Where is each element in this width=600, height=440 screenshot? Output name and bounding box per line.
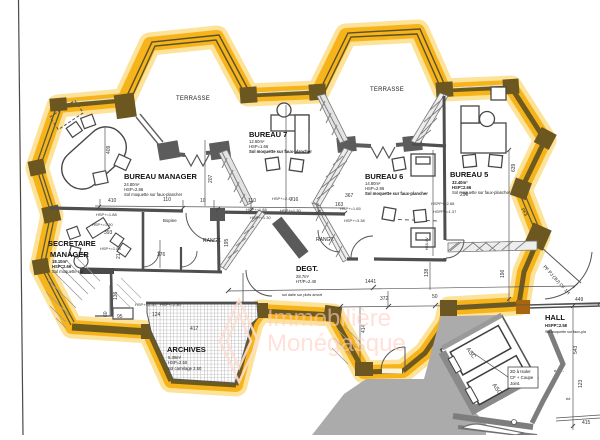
svg-text:HSP+=2.44: HSP+=2.44 [272,196,293,201]
svg-text:HSU AV: HSU AV [425,237,429,250]
svg-text:95: 95 [117,314,123,320]
svg-text:TERRASSE: TERRASSE [176,96,210,102]
svg-text:Immobilière: Immobilière [267,305,391,332]
svg-text:HSP+=1.88: HSP+=1.88 [246,207,267,212]
svg-text:HSP+=1.88: HSP+=1.88 [96,212,117,217]
svg-text:HT/P=2.40: HT/P=2.40 [296,279,317,284]
svg-text:BUREAU 6: BUREAU 6 [365,172,403,181]
svg-text:BUREAU MANAGER: BUREAU MANAGER [124,172,198,181]
svg-text:410: 410 [108,198,117,204]
svg-text:Sol moquette sur: Sol moquette sur [52,269,84,274]
svg-text:136: 136 [113,291,119,300]
svg-text:Sol moquette sur faux-plancher: Sol moquette sur faux-plancher [452,190,511,195]
svg-text:367: 367 [345,193,354,199]
svg-text:196: 196 [500,269,506,278]
svg-text:HSP+=1.30: HSP+=1.30 [280,208,301,213]
svg-text:BUREAU 5: BUREAU 5 [450,170,488,179]
svg-text:Sol moquette sur faux-pla: Sol moquette sur faux-pla [545,330,586,334]
svg-text:BUREAU 7: BUREAU 7 [249,130,287,139]
svg-text:1441: 1441 [365,279,376,285]
svg-text:HSP+=2.30: HSP+=2.30 [160,302,181,307]
svg-text:449: 449 [575,297,584,303]
svg-text:HSP+=1.88: HSP+=1.88 [100,246,121,251]
svg-text:123: 123 [578,379,584,388]
svg-text:2D à Isoler: 2D à Isoler [510,369,531,374]
svg-text:639: 639 [511,163,517,172]
svg-text:HSP=2.50: HSP=2.50 [168,360,188,365]
svg-text:393: 393 [104,230,113,236]
svg-text:110: 110 [163,197,171,203]
svg-text:HSP+=1.30: HSP+=1.30 [92,222,113,227]
svg-text:SECRETAIRE: SECRETAIRE [48,239,96,248]
svg-text:ARCHIVES: ARCHIVES [167,345,206,354]
svg-text:HSPP+=1.37: HSPP+=1.37 [433,209,457,214]
svg-text:376: 376 [157,252,166,258]
svg-text:MANAGER: MANAGER [50,250,89,259]
svg-text:HSP+=3.38: HSP+=3.38 [344,218,365,223]
svg-text:417: 417 [190,326,199,332]
svg-text:TERRASSE: TERRASSE [370,87,404,93]
svg-text:Sol moquette sur faux-plancher: Sol moquette sur faux-plancher [249,149,312,154]
svg-text:Monégasque: Monégasque [267,330,406,357]
svg-text:RANGT.: RANGT. [203,238,221,244]
svg-text:DEGT.: DEGT. [296,264,318,273]
svg-text:207: 207 [208,174,214,183]
svg-text:415: 415 [582,420,591,426]
svg-text:60: 60 [103,311,109,317]
svg-text:CF + Coupe: CF + Coupe [510,375,534,380]
svg-text:124: 124 [152,312,161,318]
svg-text:HSPP+=2.88: HSPP+=2.88 [431,201,455,206]
svg-text:50: 50 [432,294,438,300]
svg-text:Sol moquette sur faux-plancher: Sol moquette sur faux-plancher [124,192,183,197]
svg-text:HSP+=1.30: HSP+=1.30 [250,215,271,220]
svg-text:HALL: HALL [545,313,565,322]
svg-text:138: 138 [424,268,430,277]
svg-text:21: 21 [116,253,122,259]
svg-text:sol carrelage 2.50: sol carrelage 2.50 [168,366,202,371]
svg-text:HSP+=1.65: HSP+=1.65 [340,206,361,211]
svg-text:Joint.: Joint. [510,381,520,386]
svg-text:195: 195 [224,238,230,247]
svg-text:10: 10 [200,198,206,204]
svg-text:409: 409 [106,145,112,154]
svg-text:Sol moquette sur faux-plancher: Sol moquette sur faux-plancher [365,191,428,196]
svg-text:Bopine: Bopine [163,218,177,223]
svg-text:110: 110 [248,198,256,204]
svg-text:RANGT.: RANGT. [316,237,334,243]
svg-text:HSPP=2.58: HSPP=2.58 [545,323,568,328]
svg-text:sol dalle sur plots amort: sol dalle sur plots amort [282,293,323,297]
svg-text:372: 372 [380,296,389,302]
svg-text:HSP+=2.50: HSP+=2.50 [135,302,156,307]
svg-text:543: 543 [573,345,579,354]
